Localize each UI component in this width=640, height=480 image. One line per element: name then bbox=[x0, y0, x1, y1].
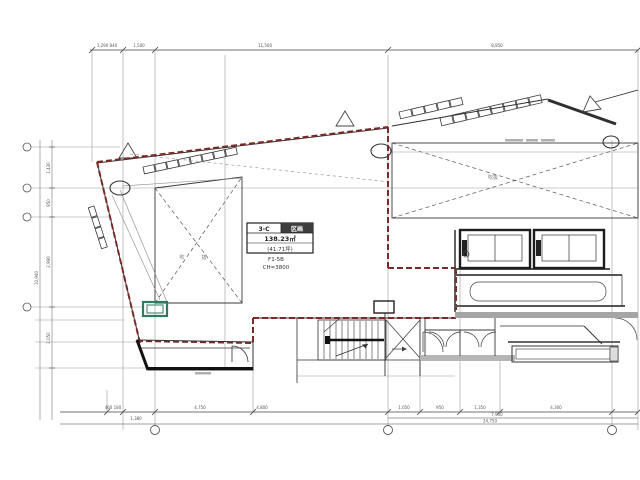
dim-top-4: 8,850 bbox=[491, 43, 503, 48]
void-left-label: 吹 抜 bbox=[179, 254, 212, 261]
room-ceiling-height: CH=3800 bbox=[263, 265, 290, 271]
left-grid-bubbles bbox=[23, 143, 31, 311]
grid-lines bbox=[27, 50, 638, 430]
void-right-label: 吹抜 bbox=[488, 174, 498, 181]
dim-bottom-subtotal: 7,950 bbox=[491, 412, 503, 417]
louver-band-top-right-2 bbox=[440, 95, 542, 126]
dim-left-3: 2,990 bbox=[46, 256, 51, 268]
dim-bottom-4: 4,800 bbox=[256, 405, 268, 410]
dim-bottom-6: 950 bbox=[436, 405, 444, 410]
roof-vent-triangles bbox=[119, 96, 601, 158]
bench-counter bbox=[500, 326, 620, 362]
service-shaft bbox=[386, 320, 443, 358]
bottom-grid-bubbles bbox=[151, 426, 617, 435]
dim-bottom-1: 460 180 bbox=[105, 405, 122, 410]
dim-bottom-5: 1,050 bbox=[398, 405, 410, 410]
bottom-dimension-line: 460 180 1,380 4,750 4,800 1,050 950 1,35… bbox=[60, 405, 640, 435]
floor-plan-page: 1,290 840 1,500 11,500 8,850 1,430 950 2… bbox=[0, 0, 640, 480]
dim-left-4: 2,050 bbox=[46, 332, 51, 344]
column-markers bbox=[110, 136, 619, 195]
lower-walls bbox=[420, 312, 638, 361]
dim-bottom-3: 4,750 bbox=[194, 405, 206, 410]
dim-top-1: 1,290 840 bbox=[97, 43, 118, 48]
dim-left-2: 950 bbox=[46, 199, 51, 207]
dim-bottom-7: 1,350 bbox=[474, 405, 486, 410]
void-area-right: 吹抜 bbox=[392, 139, 638, 218]
room-code: F1-5B bbox=[268, 257, 284, 263]
void-area-left: 吹 抜 bbox=[155, 177, 242, 303]
left-dimension-line: 1,430 950 2,990 2,050 10,940 bbox=[23, 140, 55, 420]
room-info-box: 3-C 区画 138.23㎡ (41.71坪) F1-5B CH=3800 bbox=[247, 223, 313, 271]
room-unit-right: 区画 bbox=[291, 225, 303, 233]
louver-band-left-wall bbox=[88, 206, 107, 249]
dim-left-1: 1,430 bbox=[46, 162, 51, 174]
dim-top-2: 1,500 bbox=[133, 43, 145, 48]
room-unit-left: 3-C bbox=[258, 226, 270, 233]
illegible-annotation bbox=[505, 139, 555, 142]
dim-left-total: 10,940 bbox=[34, 271, 39, 285]
top-dimension-line: 1,290 840 1,500 11,500 8,850 bbox=[89, 43, 640, 53]
dim-bottom-total: 24,750 bbox=[483, 419, 497, 424]
room-area-tsubo: (41.71坪) bbox=[267, 245, 293, 253]
planter bbox=[137, 340, 253, 375]
dim-bottom-8: 4,300 bbox=[550, 405, 562, 410]
staircase bbox=[318, 301, 394, 360]
dim-top-3: 11,500 bbox=[258, 43, 272, 48]
dim-bottom-2: 1,380 bbox=[130, 416, 142, 421]
illegible-annotation bbox=[195, 372, 211, 375]
elevator-shafts bbox=[456, 230, 610, 269]
floor-plan-drawing: 1,290 840 1,500 11,500 8,850 1,430 950 2… bbox=[0, 0, 640, 480]
room-area-m2: 138.23㎡ bbox=[264, 234, 296, 243]
